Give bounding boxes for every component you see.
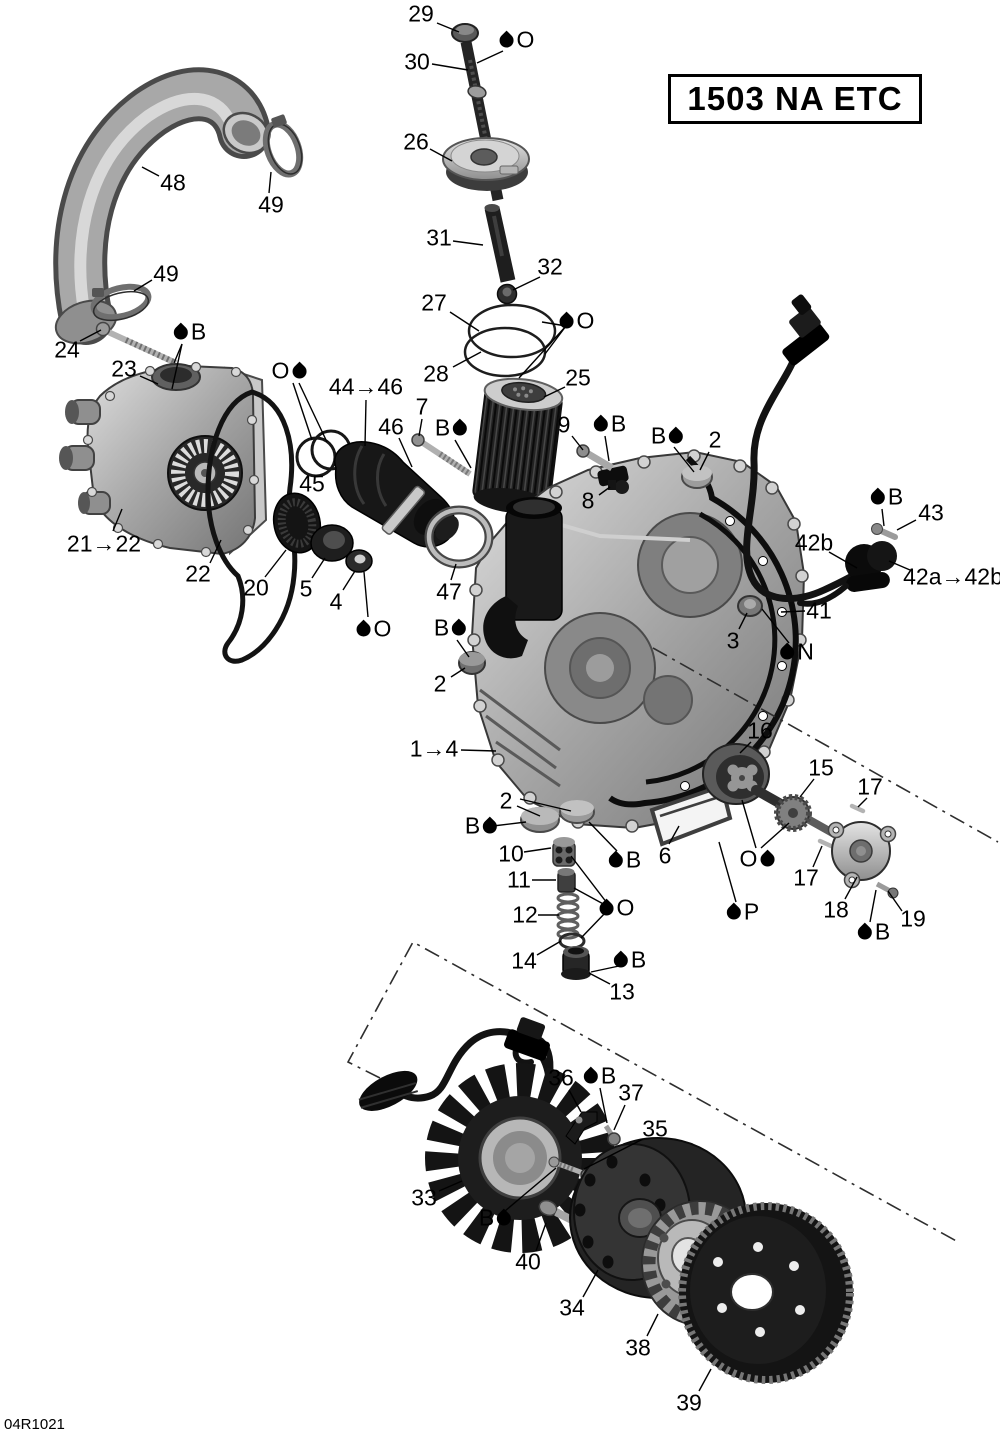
part-2-plug-top	[682, 465, 712, 488]
model-title: 1503 NA ETC	[687, 80, 902, 118]
part-11-valve-piston	[558, 868, 576, 892]
part-31-spacer	[485, 204, 509, 281]
part-27-o-ring	[469, 305, 555, 357]
part-32-nut	[498, 285, 517, 304]
part-3-sleeve-nut	[738, 596, 762, 616]
part-28-o-ring	[465, 328, 545, 376]
part-14-o-ring	[560, 934, 584, 948]
part-48-water-hose	[50, 94, 275, 350]
part-18-pump-cover	[829, 822, 896, 888]
part-13-plug	[561, 946, 591, 980]
part-21-22-water-pump	[59, 363, 266, 557]
part-26-washer-cover	[443, 138, 529, 191]
model-title-box: 1503 NA ETC	[668, 74, 922, 124]
part-10-valve-cage	[553, 837, 575, 866]
part-12-spring	[558, 894, 578, 938]
part-19-bolt	[877, 884, 898, 898]
part-4-seal	[346, 550, 372, 572]
part-2-plug-left	[459, 652, 485, 674]
part-5-seal	[311, 525, 353, 561]
part-9-bolt	[577, 445, 612, 468]
part-2-plug-bottom-right	[560, 800, 594, 823]
part-43-screw	[872, 524, 896, 538]
part-39-ring-gear	[679, 1203, 853, 1383]
document-code: 04R1021	[4, 1416, 65, 1433]
parts-illustration	[0, 0, 1000, 1441]
exploded-parts-diagram: 2930263132272825484949242321→22222054454…	[0, 0, 1000, 1441]
part-2-plug-bottom-left	[521, 807, 559, 832]
part-7-bolt	[412, 434, 470, 474]
part-24-bolt	[97, 323, 177, 364]
